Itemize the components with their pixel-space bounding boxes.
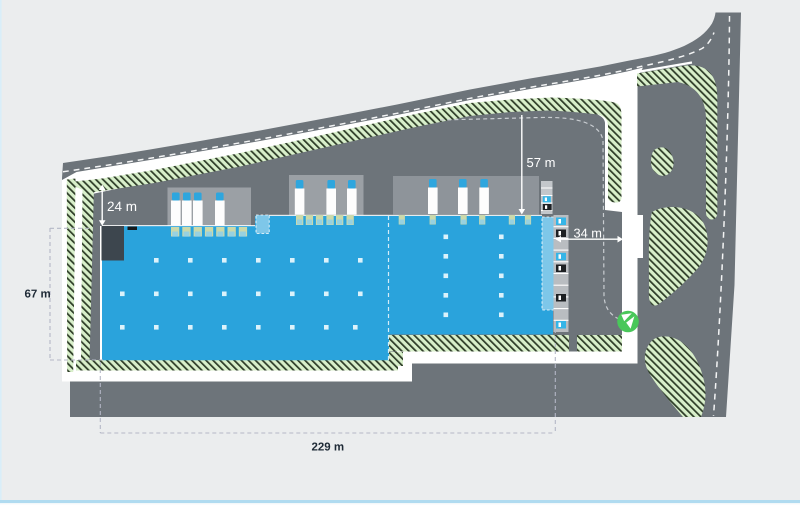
svg-text:67 m: 67 m [25, 289, 51, 301]
svg-text:229 m: 229 m [312, 442, 345, 454]
svg-text:57 m: 57 m [527, 155, 556, 170]
svg-text:24 m: 24 m [107, 199, 137, 214]
svg-text:34 m: 34 m [574, 226, 602, 241]
